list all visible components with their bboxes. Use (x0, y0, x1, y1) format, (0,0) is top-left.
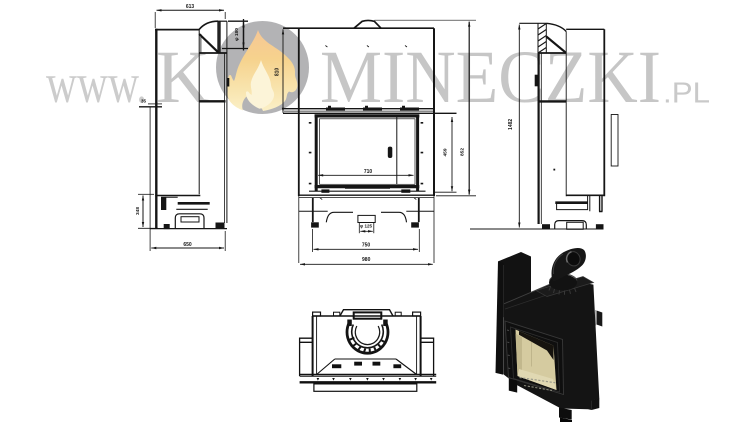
svg-text:.PL: .PL (663, 78, 710, 110)
svg-text:348: 348 (135, 207, 141, 215)
svg-text:35: 35 (141, 99, 147, 104)
svg-text:613: 613 (186, 4, 195, 10)
svg-text:810: 810 (275, 68, 281, 77)
svg-text:459: 459 (443, 148, 449, 156)
svg-text:1482: 1482 (508, 119, 514, 130)
svg-text:980: 980 (362, 257, 371, 263)
svg-text:MINECZKI: MINECZKI (320, 36, 661, 119)
svg-text:φ 125: φ 125 (360, 224, 372, 229)
svg-text:852: 852 (460, 148, 466, 156)
svg-text:K: K (156, 36, 210, 119)
svg-text:650: 650 (183, 242, 192, 248)
svg-text:φ 180: φ 180 (234, 28, 240, 41)
svg-text:710: 710 (364, 169, 373, 175)
svg-text:www.: www. (46, 53, 147, 115)
svg-text:750: 750 (362, 242, 371, 248)
